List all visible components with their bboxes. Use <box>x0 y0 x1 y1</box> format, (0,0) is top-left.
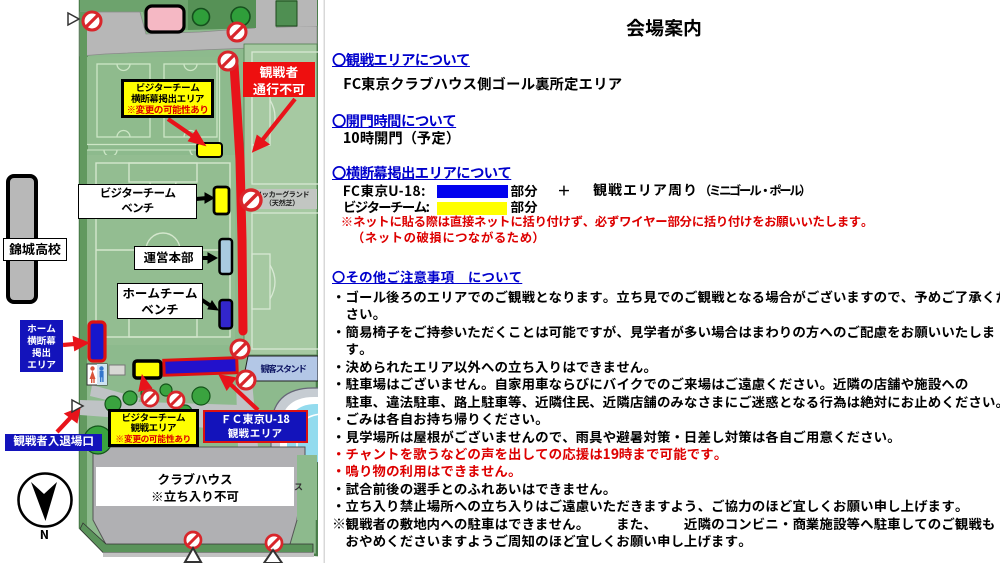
svg-text:N: N <box>40 524 49 543</box>
svg-text:（天然芝）: （天然芝） <box>265 199 299 209</box>
svg-text:ス: ス <box>294 480 303 493</box>
svg-text:観客スタンド: 観客スタンド <box>259 362 307 375</box>
